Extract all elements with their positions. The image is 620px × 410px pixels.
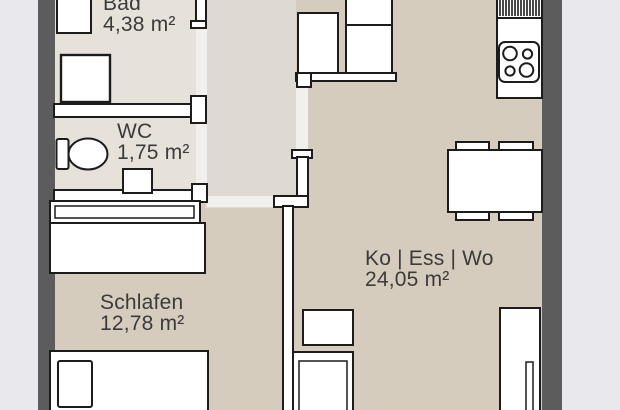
bedroom-shelf [50, 201, 200, 223]
room-name: Schlafen [100, 292, 184, 313]
room-name: Bad [103, 0, 176, 14]
room-area: 24,05 m² [365, 269, 494, 290]
wall-bedroom-living-divider [283, 206, 293, 410]
wall-cap-bad-wc [191, 96, 206, 123]
room-name: Ko | Ess | Wo [365, 248, 494, 269]
threshold-living-opening [296, 87, 308, 150]
room-name: WC [117, 121, 190, 142]
wardrobe-compartment-left [298, 13, 338, 74]
sideboard-handle [526, 362, 533, 410]
wardrobe-side-step [297, 73, 311, 87]
burner-top-left [503, 47, 517, 61]
threshold-bad-door [196, 28, 207, 96]
burner-top-right [523, 49, 532, 58]
wall-hall-stub [297, 157, 308, 198]
floorplan: Bad 4,38 m² WC 1,75 m² Schlafen 12,78 m²… [0, 0, 620, 410]
wc-hand-basin [123, 169, 152, 193]
bed-pillow [58, 361, 92, 407]
burner-bottom-left [505, 66, 514, 75]
room-area: 4,38 m² [103, 14, 176, 35]
wardrobe-compartment-right [346, 0, 392, 74]
threshold-bedroom-door [207, 196, 274, 207]
room-label-ko-ess-wo: Ko | Ess | Wo 24,05 m² [365, 248, 494, 290]
outer-wall-right [542, 0, 562, 410]
wall-cap-bad-door [191, 21, 206, 28]
room-area: 1,75 m² [117, 142, 190, 163]
toilet-bowl [69, 139, 108, 170]
washing-machine [61, 55, 110, 102]
floor-hall [205, 0, 296, 208]
sideboard [500, 308, 540, 410]
wall-cap-wc-door [192, 184, 207, 202]
burner-bottom-right [520, 63, 534, 77]
dining-table [448, 150, 542, 212]
room-label-schlafen: Schlafen 12,78 m² [100, 292, 184, 334]
room-label-bad: Bad 4,38 m² [103, 0, 176, 35]
room-area: 12,78 m² [100, 313, 184, 334]
wall-bad-wc-divider [54, 104, 193, 117]
small-cabinet [303, 310, 353, 345]
washbasin [57, 0, 91, 33]
room-label-wc: WC 1,75 m² [117, 121, 190, 163]
floorplan-drawing [0, 0, 620, 410]
toilet-tank [57, 139, 69, 169]
wall-bad-right-stub [196, 0, 206, 21]
bedroom-wardrobe [50, 223, 205, 273]
threshold-wc-door [196, 123, 207, 184]
